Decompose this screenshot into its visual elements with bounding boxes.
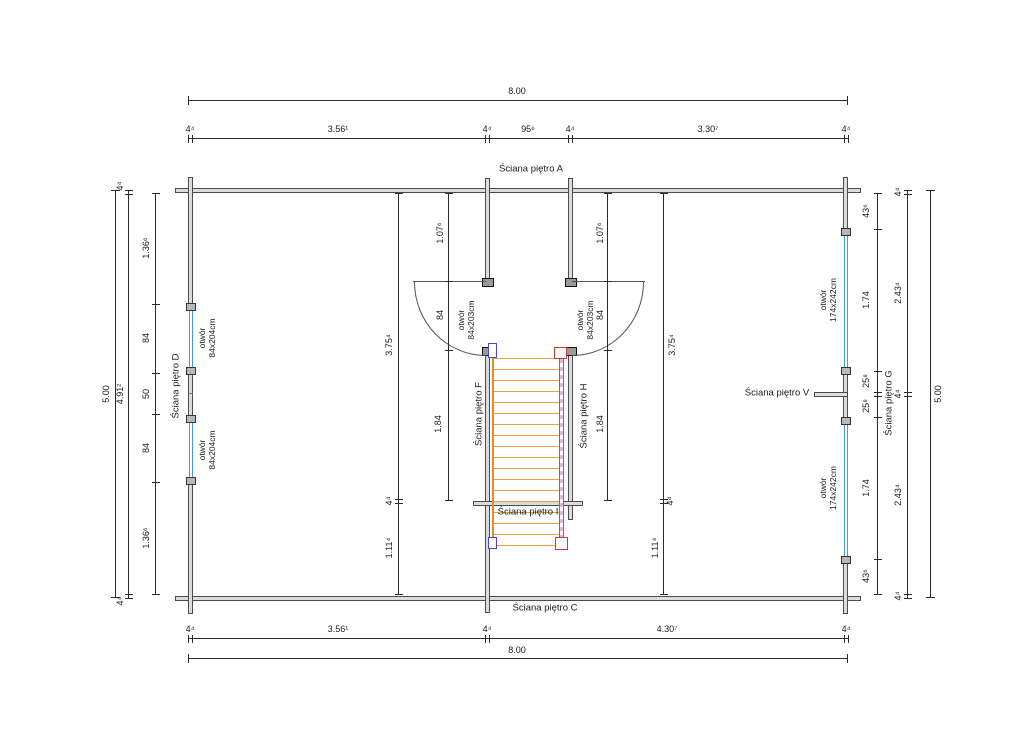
stair-tread xyxy=(493,446,562,447)
opening-size: 174x242cm xyxy=(828,278,838,322)
dim-top-chain-5: 3.30⁷ xyxy=(698,124,719,134)
wall-c-label: Ściana piętro C xyxy=(513,603,578,614)
wall-d-post xyxy=(186,367,196,375)
dim-tick xyxy=(572,135,573,143)
wall-g-post xyxy=(841,556,851,564)
opening-word: otwór xyxy=(197,430,207,469)
dim-tick xyxy=(445,193,453,194)
dim-tick xyxy=(844,135,845,143)
dim-tick xyxy=(904,392,912,393)
dim-line-left-inner xyxy=(155,193,156,594)
wall-g-window-top xyxy=(844,236,848,367)
dim-line-stair-left-inner xyxy=(448,193,449,500)
dim-right-mid-1: 2.43⁴ xyxy=(893,282,903,303)
dim-end-bar xyxy=(926,597,935,598)
opening-label-wall-d-top: otwór 84x204cm xyxy=(197,318,217,357)
dim-line-bottom-chain xyxy=(188,638,848,639)
stair-tread xyxy=(493,490,562,491)
dim-tick xyxy=(874,229,882,230)
dim-left-mid-1: 4.91² xyxy=(115,384,125,405)
dim-line-bottom-overall xyxy=(188,658,848,659)
dim-tick xyxy=(848,135,849,143)
dim-top-chain-6: 4⁴ xyxy=(842,124,851,134)
dim-tick xyxy=(152,414,160,415)
stair-tread xyxy=(493,479,562,480)
dim-right-inner-4: 1.74 xyxy=(861,479,871,497)
dim-stair-left-outer-2: 1.11⁴ xyxy=(384,538,394,559)
dim-bottom-chain-3: 4.30⁷ xyxy=(657,624,678,634)
dim-tick xyxy=(604,500,612,501)
dim-tick xyxy=(904,190,912,191)
dim-tick xyxy=(125,194,133,195)
stair-tread xyxy=(493,402,562,403)
stair-tread xyxy=(493,424,562,425)
opening-word: otwór xyxy=(456,300,466,339)
dim-tick xyxy=(485,635,486,643)
stair-tread xyxy=(493,534,562,535)
dim-line-top-overall xyxy=(188,100,848,101)
dim-tick xyxy=(445,281,453,282)
dim-line-stair-left-outer xyxy=(398,193,399,594)
dim-stair-right-outer-1: 4⁴ xyxy=(665,497,675,506)
dim-bottom-chain-4: 4⁴ xyxy=(842,624,851,634)
dim-line-right-inner xyxy=(877,193,878,594)
dim-tick xyxy=(874,392,882,393)
dim-line-left-mid xyxy=(128,190,129,598)
dim-tick xyxy=(125,598,133,599)
dim-tick xyxy=(904,594,912,595)
dim-line-top-chain xyxy=(188,138,848,139)
dim-left-inner-0: 1.36⁶ xyxy=(141,237,151,258)
dim-stair-right-outer-2: 1.11⁴ xyxy=(650,538,660,559)
dim-tick xyxy=(874,396,882,397)
dim-tick xyxy=(904,598,912,599)
dim-bottom-chain-1: 3.56¹ xyxy=(328,624,349,634)
wall-i-label: Ściana piętro I xyxy=(498,507,559,518)
floor-plan-drawing: 8.00 4⁴ 3.56¹ 4⁴ 95⁶ 4⁴ 3.30⁷ 4⁴ 4⁴ 3.56… xyxy=(0,0,1024,753)
dim-tick xyxy=(489,635,490,643)
dim-end-bar xyxy=(926,190,935,191)
dim-top-chain-4: 4⁴ xyxy=(566,124,575,134)
stair-tread xyxy=(493,468,562,469)
opening-word: otwór xyxy=(818,466,828,510)
opening-label-wall-g-bottom: otwór 174x242cm xyxy=(818,466,838,510)
wall-v-label: Ściana piętro V xyxy=(745,388,809,399)
wall-d-joint-mark xyxy=(188,393,193,394)
dim-end-bar xyxy=(847,654,848,663)
dim-top-chain-3: 95⁶ xyxy=(521,124,535,134)
dim-left-mid-0: 4⁴ xyxy=(115,182,125,191)
dim-left-overall: 5.00 xyxy=(101,385,111,403)
stair-tread xyxy=(493,369,562,370)
opening-word: otwór xyxy=(197,318,207,357)
dim-right-inner-0: 43⁶ xyxy=(861,204,871,218)
dim-tick xyxy=(152,373,160,374)
dim-left-inner-1: 84 xyxy=(141,333,151,343)
wall-d-post xyxy=(186,415,196,423)
dim-stair-left-inner-0: 1.07⁶ xyxy=(435,222,445,243)
dim-line-stair-right-inner xyxy=(607,193,608,500)
dim-tick xyxy=(188,135,189,143)
dim-right-inner-1: 1.74 xyxy=(861,291,871,309)
dim-tick xyxy=(445,350,453,351)
dim-end-bar xyxy=(188,96,189,105)
stair-cap-red-bottom xyxy=(555,537,568,550)
wall-d-window-bottom xyxy=(189,423,193,477)
dim-bottom-overall: 8.00 xyxy=(508,645,526,655)
dim-tick xyxy=(904,396,912,397)
dim-end-bar xyxy=(188,654,189,663)
dim-tick xyxy=(152,304,160,305)
dim-left-inner-4: 1.36⁶ xyxy=(141,527,151,548)
dim-tick xyxy=(874,559,882,560)
dim-tick xyxy=(445,500,453,501)
dim-tick xyxy=(604,281,612,282)
dim-stair-right-inner-2: 1.84 xyxy=(595,415,605,433)
dim-tick xyxy=(604,193,612,194)
dim-line-right-mid xyxy=(907,190,908,598)
wall-v-stub xyxy=(814,392,848,397)
wall-g-label: Ściana piętro G xyxy=(884,370,895,435)
dim-tick xyxy=(152,193,160,194)
wall-d xyxy=(188,177,193,614)
dim-tick xyxy=(660,193,668,194)
dim-left-inner-3: 84 xyxy=(141,443,151,453)
dim-stair-left-inner-2: 1.84 xyxy=(433,415,443,433)
wall-g-window-bottom xyxy=(844,425,848,556)
dim-bottom-chain-0: 4⁴ xyxy=(186,624,195,634)
dim-right-mid-2: 4⁴ xyxy=(893,390,903,399)
wall-f-label: Ściana piętro F xyxy=(474,382,485,446)
wall-c xyxy=(175,596,861,601)
dim-bottom-chain-2: 4⁴ xyxy=(483,624,492,634)
dim-tick xyxy=(660,594,668,595)
dim-stair-right-outer-0: 3.75⁴ xyxy=(667,334,677,355)
dim-tick xyxy=(395,503,403,504)
stair-tread xyxy=(493,523,562,524)
dim-right-overall: 5.00 xyxy=(933,385,943,403)
dim-tick xyxy=(904,194,912,195)
stair-tread xyxy=(493,391,562,392)
dim-top-chain-2: 4⁴ xyxy=(483,124,492,134)
dim-top-chain-0: 4⁴ xyxy=(186,124,195,134)
dim-stair-left-inner-1: 84 xyxy=(435,310,445,320)
dim-tick xyxy=(848,635,849,643)
dim-tick xyxy=(125,594,133,595)
opening-size: 84x204cm xyxy=(207,318,217,357)
stair-cap-blue-top xyxy=(488,343,497,358)
dim-left-mid-2: 4⁴ xyxy=(115,597,125,606)
dim-tick xyxy=(489,135,490,143)
dim-tick xyxy=(874,594,882,595)
dim-right-inner-3: 25⁸ xyxy=(861,399,871,413)
opening-label-wall-f-door: otwór 84x203cm xyxy=(456,300,476,339)
stair-tread xyxy=(493,501,562,502)
wall-d-post xyxy=(186,477,196,485)
stair-tread xyxy=(493,435,562,436)
dim-stair-right-inner-0: 1.07⁶ xyxy=(595,222,605,243)
stair-tread xyxy=(493,413,562,414)
opening-word: otwór xyxy=(575,300,585,339)
dim-tick xyxy=(395,499,403,500)
wall-d-label: Ściana piętro D xyxy=(171,354,182,419)
dim-right-mid-0: 4⁴ xyxy=(893,188,903,197)
stair-tread xyxy=(493,457,562,458)
dim-tick xyxy=(844,635,845,643)
opening-size: 84x204cm xyxy=(207,430,217,469)
stair-cap-blue-bottom xyxy=(488,537,497,549)
opening-size: 174x242cm xyxy=(828,466,838,510)
opening-label-wall-d-bottom: otwór 84x204cm xyxy=(197,430,217,469)
opening-label-wall-g-top: otwór 174x242cm xyxy=(818,278,838,322)
dim-top-overall: 8.00 xyxy=(508,86,526,96)
opening-size: 84x203cm xyxy=(466,300,476,339)
dim-line-stair-right-outer xyxy=(663,193,664,594)
wall-g-post xyxy=(841,228,851,236)
dim-tick xyxy=(604,350,612,351)
wall-d-window-top xyxy=(189,311,193,367)
stair-stringer-left xyxy=(492,358,494,545)
dim-left-inner-2: 50 xyxy=(141,389,151,399)
dim-tick xyxy=(874,371,882,372)
dim-tick xyxy=(188,635,189,643)
dim-tick xyxy=(874,193,882,194)
stair-tread xyxy=(493,358,562,359)
dim-tick xyxy=(568,135,569,143)
dim-right-inner-2: 25⁸ xyxy=(861,374,871,388)
wall-a-label: Ściana piętro A xyxy=(499,164,563,175)
stair-tread xyxy=(493,380,562,381)
dim-tick xyxy=(125,190,133,191)
dim-stair-left-outer-1: 4⁴ xyxy=(384,497,394,506)
dim-tick xyxy=(152,482,160,483)
wall-h-label: Ściana piętro H xyxy=(579,384,590,449)
dim-line-right-overall xyxy=(930,190,931,598)
opening-label-wall-h-door: otwór 84x203cm xyxy=(575,300,595,339)
stair-cap-red-top xyxy=(554,347,567,359)
wall-g-post xyxy=(841,417,851,425)
dim-tick xyxy=(152,594,160,595)
dim-right-inner-5: 43⁶ xyxy=(861,569,871,583)
stair-stringer-right xyxy=(559,359,564,537)
dim-tick xyxy=(395,594,403,595)
dim-tick xyxy=(192,135,193,143)
stair-tread xyxy=(493,545,562,546)
dim-right-mid-4: 4⁴ xyxy=(893,592,903,601)
wall-a xyxy=(175,188,861,193)
dim-end-bar xyxy=(847,96,848,105)
dim-stair-left-outer-0: 3.75⁴ xyxy=(384,334,394,355)
opening-size: 84x203cm xyxy=(585,300,595,339)
dim-stair-right-inner-1: 84 xyxy=(595,310,605,320)
dim-tick xyxy=(485,135,486,143)
dim-tick xyxy=(395,193,403,194)
dim-top-chain-1: 3.56¹ xyxy=(328,124,349,134)
dim-tick xyxy=(874,417,882,418)
dim-right-mid-3: 2.43⁴ xyxy=(893,484,903,505)
opening-word: otwór xyxy=(818,278,828,322)
dim-tick xyxy=(192,635,193,643)
wall-d-post xyxy=(186,303,196,311)
wall-g-post xyxy=(841,367,851,375)
